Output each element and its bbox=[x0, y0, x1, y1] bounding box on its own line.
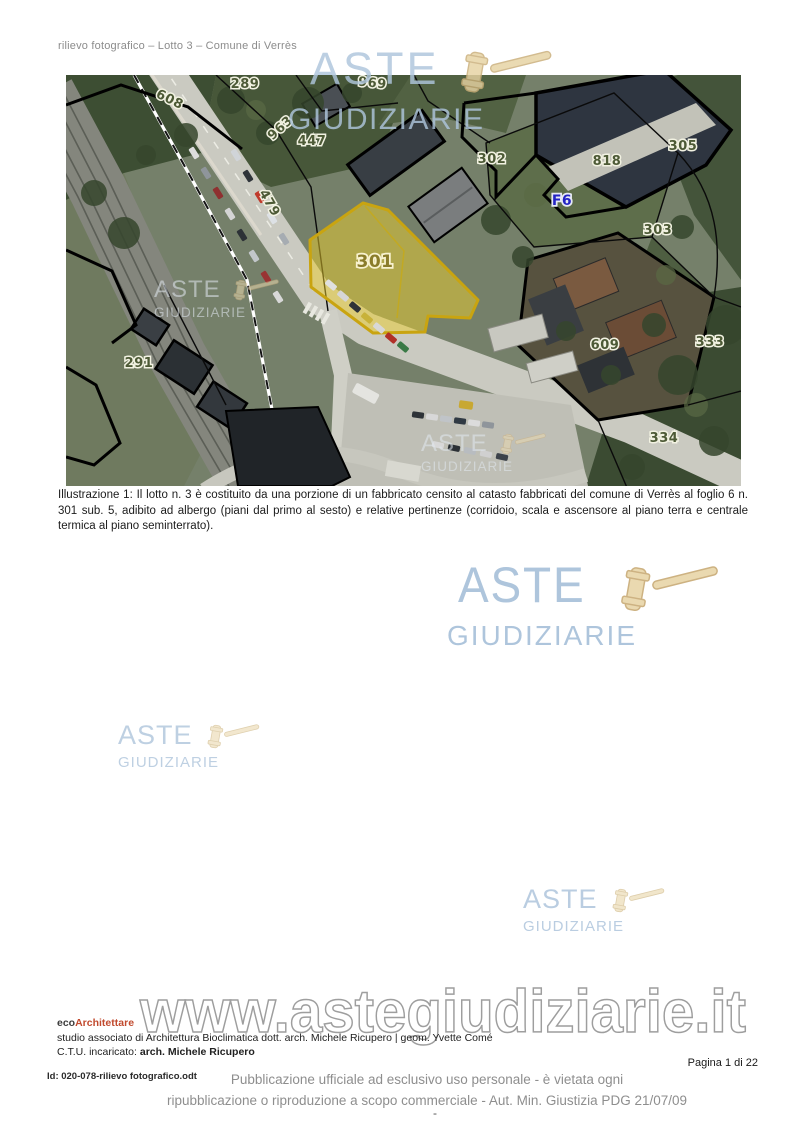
parcel-label-818: 818 bbox=[593, 154, 622, 169]
parcel-label-289: 289 bbox=[231, 77, 260, 92]
watermark-text-giudiziarie: GIUDIZIARIE bbox=[288, 105, 558, 135]
watermark-text-aste: ASTE bbox=[458, 560, 586, 610]
watermark-logo-lower-right: ASTE GIUDIZIARIE bbox=[523, 886, 668, 934]
watermark-logo-large: ASTE GIUDIZIARIE bbox=[447, 560, 725, 650]
watermark-text-aste: ASTE bbox=[523, 886, 598, 913]
gavel-icon bbox=[605, 564, 725, 616]
parcel-label-447: 447 bbox=[298, 134, 327, 149]
legal-line-2: ripubblicazione o riproduzione a scopo c… bbox=[57, 1090, 797, 1111]
firm-info: ecoArchitettare studio associato di Arch… bbox=[57, 1016, 493, 1060]
firm-studio-line: studio associato di Architettura Bioclim… bbox=[57, 1031, 493, 1046]
watermark-text-aste: ASTE bbox=[118, 722, 193, 749]
firm-name: ecoArchitettare bbox=[57, 1016, 493, 1031]
document-page: { "page": { "header": "rilievo fotografi… bbox=[0, 0, 800, 1132]
footer-dash: - bbox=[433, 1106, 437, 1120]
watermark-text-giudiziarie: GIUDIZIARIE bbox=[118, 755, 263, 770]
watermark-text-giudiziarie: GIUDIZIARIE bbox=[523, 919, 668, 934]
watermark-text-giudiziarie: GIUDIZIARIE bbox=[447, 622, 725, 650]
ctu-name: arch. Michele Ricupero bbox=[140, 1046, 255, 1058]
legal-notice: Pubblicazione ufficiale ad esclusivo uso… bbox=[57, 1069, 797, 1111]
watermark-text-aste: ASTE bbox=[154, 278, 221, 302]
firm-name-eco: eco bbox=[57, 1017, 75, 1029]
gavel-icon bbox=[493, 432, 549, 457]
page-title: rilievo fotografico – Lotto 3 – Comune d… bbox=[58, 40, 297, 52]
page-number: Pagina 1 di 22 bbox=[688, 1057, 758, 1069]
gavel-icon bbox=[226, 278, 282, 303]
parcel-label-291: 291 bbox=[125, 356, 154, 371]
watermark-logo-map-bottom: ASTE GIUDIZIARIE bbox=[421, 432, 549, 474]
parcel-label-609: 609 bbox=[591, 338, 620, 353]
watermark-text-aste: ASTE bbox=[421, 432, 488, 456]
parcel-label-301: 301 bbox=[357, 252, 394, 272]
parcel-label-334: 334 bbox=[650, 431, 679, 446]
watermark-text-giudiziarie: GIUDIZIARIE bbox=[421, 460, 549, 474]
firm-ctu-line: C.T.U. incaricato: arch. Michele Ricuper… bbox=[57, 1045, 493, 1060]
parcel-label-333: 333 bbox=[696, 335, 725, 350]
parcel-label-F6: F6 bbox=[552, 193, 572, 209]
gavel-icon bbox=[199, 723, 263, 751]
watermark-text-aste: ASTE bbox=[310, 46, 440, 91]
legal-line-1: Pubblicazione ufficiale ad esclusivo uso… bbox=[57, 1069, 797, 1090]
parcel-label-303: 303 bbox=[644, 223, 673, 238]
aerial-map-image: 608289969963447479302818305303F630129160… bbox=[66, 75, 741, 486]
watermark-logo-header: ASTE GIUDIZIARIE bbox=[288, 46, 558, 135]
figure-caption: Illustrazione 1: Il lotto n. 3 è costitu… bbox=[58, 488, 748, 535]
ctu-label: C.T.U. incaricato: bbox=[57, 1046, 140, 1058]
watermark-logo-mid-left: ASTE GIUDIZIARIE bbox=[118, 722, 263, 770]
firm-name-rest: Architettare bbox=[75, 1017, 134, 1029]
parcel-label-305: 305 bbox=[669, 139, 698, 154]
watermark-text-giudiziarie: GIUDIZIARIE bbox=[154, 306, 282, 320]
parcel-label-302: 302 bbox=[478, 152, 507, 167]
gavel-icon bbox=[604, 887, 668, 915]
watermark-logo-map-left: ASTE GIUDIZIARIE bbox=[154, 278, 282, 320]
gavel-icon bbox=[446, 48, 558, 98]
